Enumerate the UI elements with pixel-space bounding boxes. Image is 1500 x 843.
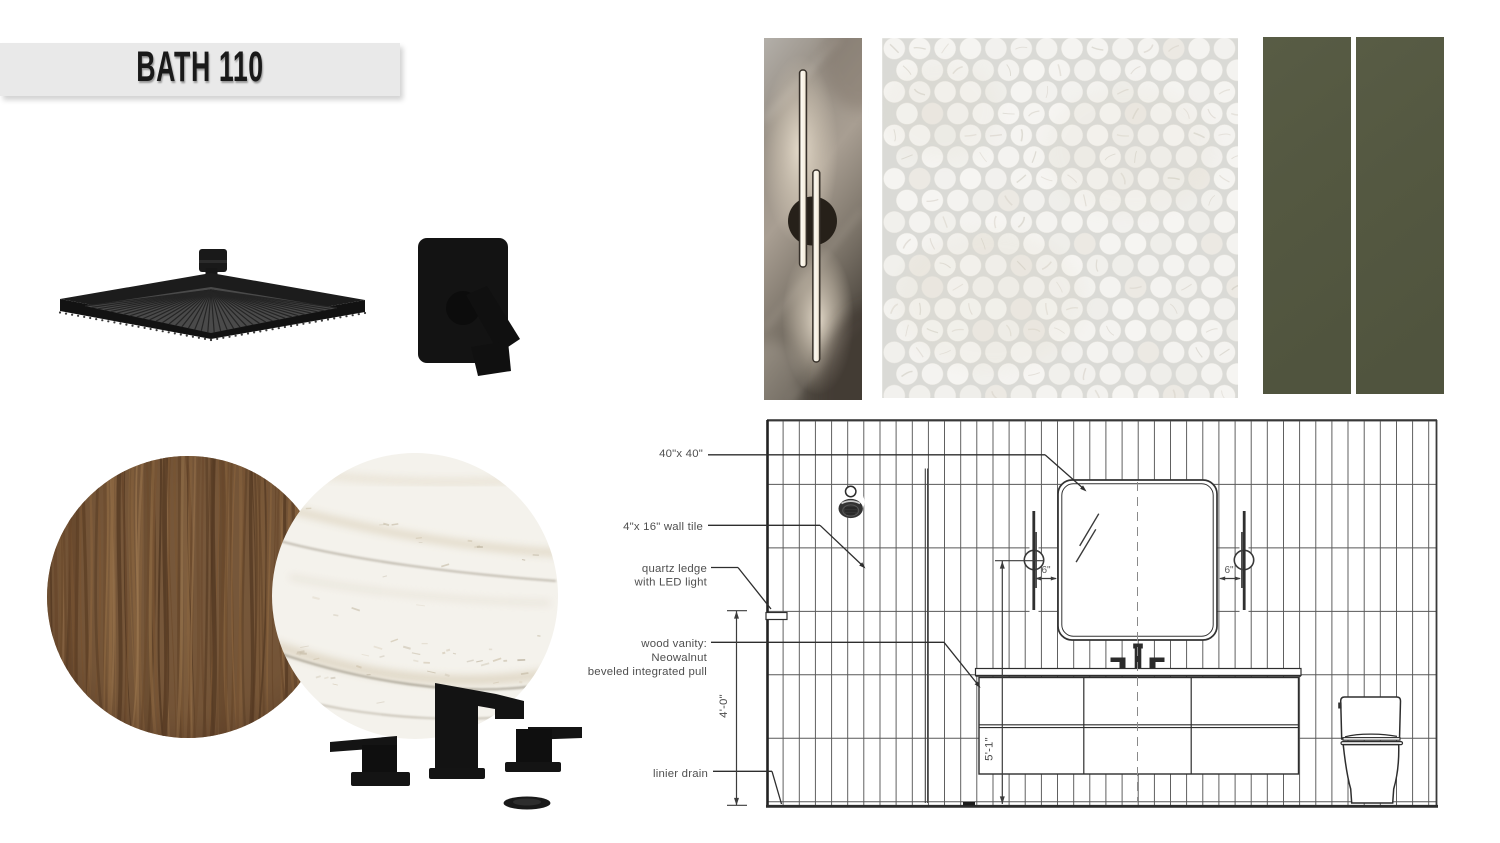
svg-text:40"x 40": 40"x 40": [659, 448, 703, 460]
svg-text:quartz ledge: quartz ledge: [642, 563, 707, 575]
svg-text:Neowalnut: Neowalnut: [651, 652, 707, 664]
svg-text:6": 6": [1041, 565, 1051, 576]
svg-text:5'-1": 5'-1": [984, 737, 996, 761]
svg-text:with LED light: with LED light: [634, 577, 708, 589]
svg-text:beveled integrated pull: beveled integrated pull: [588, 666, 707, 678]
svg-text:wood vanity:: wood vanity:: [640, 638, 707, 650]
svg-text:6": 6": [1224, 565, 1234, 576]
svg-text:linier drain: linier drain: [653, 768, 708, 780]
svg-text:4"x 16" wall tile: 4"x 16" wall tile: [623, 521, 703, 533]
svg-text:4'-0": 4'-0": [718, 694, 730, 718]
